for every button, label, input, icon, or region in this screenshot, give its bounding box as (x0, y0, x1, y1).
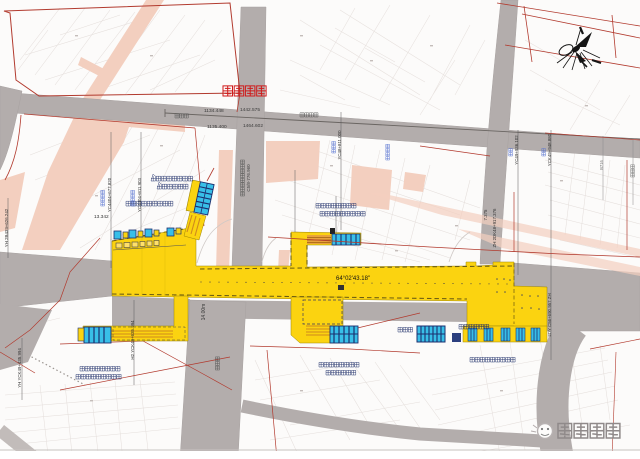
svg-text:13.342: 13.342 (94, 214, 109, 220)
svg-text:C5/8-776.960: C5/8-776.960 (246, 164, 251, 192)
svg-text:ZH 2DK48+917.376: ZH 2DK48+917.376 (492, 208, 497, 247)
svg-text:YH YCK49+435.994: YH YCK49+435.994 (17, 348, 22, 388)
svg-text:1442.575: 1442.575 (240, 107, 260, 113)
svg-text:1464.602: 1464.602 (243, 123, 263, 129)
svg-text:YC49+936.102: YC49+936.102 (514, 135, 519, 165)
svg-text:14.00m: 14.00m (201, 304, 207, 321)
svg-text:H2 YCK49+635.994: H2 YCK49+635.994 (130, 320, 135, 360)
svg-text:2DY C56+690.957 ZH: 2DY C56+690.957 ZH (547, 293, 552, 336)
svg-text:YCK49+948.880: YCK49+948.880 (547, 133, 552, 166)
svg-text:YC48+811.000: YC48+811.000 (337, 130, 342, 160)
svg-text:7.375: 7.375 (483, 209, 488, 221)
svg-text:YC4404+811.903: YC4404+811.903 (137, 177, 142, 212)
svg-text:YH 2B439+626.242: YH 2B439+626.242 (4, 208, 9, 247)
svg-text:B716: B716 (599, 159, 604, 169)
svg-text:64°02'43.18": 64°02'43.18" (336, 276, 370, 282)
svg-text:1135.400: 1135.400 (207, 124, 227, 130)
svg-text:YC4404+677.820: YC4404+677.820 (107, 177, 112, 212)
svg-text:1134.448: 1134.448 (204, 108, 224, 114)
